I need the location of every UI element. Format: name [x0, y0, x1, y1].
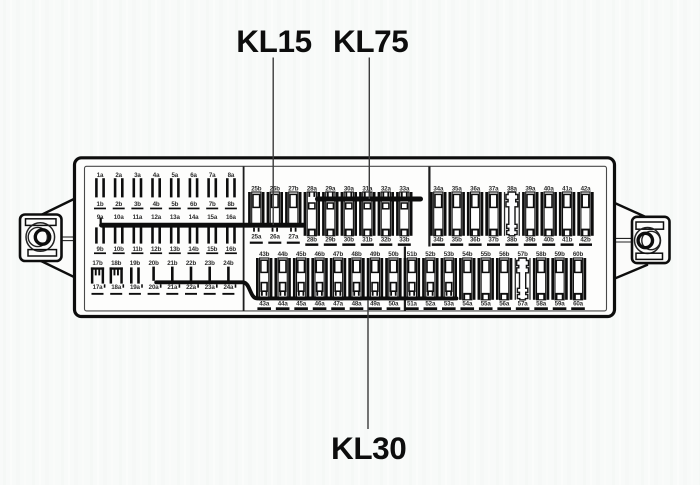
svg-text:50b: 50b: [388, 251, 399, 258]
svg-text:15a: 15a: [207, 214, 218, 221]
svg-text:52b: 52b: [425, 251, 436, 258]
svg-text:48b: 48b: [351, 251, 362, 258]
svg-text:11b: 11b: [132, 246, 142, 253]
svg-text:51a: 51a: [407, 301, 418, 308]
svg-text:42a: 42a: [581, 185, 592, 192]
svg-text:33a: 33a: [399, 185, 410, 192]
svg-text:56a: 56a: [499, 301, 510, 308]
svg-text:55b: 55b: [481, 251, 492, 258]
svg-text:39a: 39a: [525, 185, 536, 192]
svg-text:37a: 37a: [489, 185, 500, 192]
svg-text:58b: 58b: [536, 251, 547, 258]
svg-text:56b: 56b: [499, 251, 510, 258]
svg-text:53a: 53a: [444, 301, 455, 308]
svg-text:KL15: KL15: [236, 23, 311, 59]
svg-text:53b: 53b: [444, 251, 455, 258]
svg-text:6a: 6a: [190, 172, 197, 179]
svg-text:34b: 34b: [433, 236, 444, 243]
svg-text:15b: 15b: [207, 246, 218, 253]
svg-text:35b: 35b: [452, 236, 463, 243]
svg-text:31a: 31a: [362, 185, 373, 192]
svg-text:40a: 40a: [544, 185, 555, 192]
svg-text:59b: 59b: [554, 251, 565, 258]
svg-text:52a: 52a: [425, 301, 436, 308]
svg-text:26a: 26a: [270, 234, 281, 241]
svg-text:44b: 44b: [278, 251, 289, 258]
svg-text:18b: 18b: [111, 260, 122, 267]
svg-text:14a: 14a: [189, 214, 200, 221]
svg-text:48a: 48a: [352, 301, 363, 308]
svg-text:8a: 8a: [228, 172, 235, 179]
svg-text:30a: 30a: [344, 185, 355, 192]
svg-text:44a: 44a: [278, 301, 289, 308]
svg-text:KL75: KL75: [333, 23, 408, 59]
svg-text:41a: 41a: [562, 185, 573, 192]
svg-text:5a: 5a: [172, 172, 179, 179]
svg-text:34a: 34a: [433, 185, 444, 192]
svg-text:8b: 8b: [227, 201, 234, 208]
svg-text:20a: 20a: [149, 284, 160, 291]
svg-text:31b: 31b: [362, 236, 373, 243]
svg-text:32b: 32b: [381, 236, 392, 243]
svg-text:16b: 16b: [226, 246, 237, 253]
svg-text:16a: 16a: [226, 214, 237, 221]
svg-text:22b: 22b: [186, 260, 197, 267]
svg-text:43a: 43a: [259, 301, 270, 308]
svg-text:2a: 2a: [115, 172, 122, 179]
svg-text:9b: 9b: [97, 246, 104, 253]
svg-text:50a: 50a: [388, 301, 399, 308]
svg-text:10a: 10a: [114, 214, 125, 221]
svg-text:21a: 21a: [167, 284, 178, 291]
svg-text:12b: 12b: [151, 246, 162, 253]
svg-text:28b: 28b: [307, 236, 318, 243]
svg-text:45b: 45b: [296, 251, 307, 258]
svg-text:12a: 12a: [151, 214, 162, 221]
svg-text:42b: 42b: [580, 236, 591, 243]
svg-text:18a: 18a: [111, 284, 122, 291]
svg-text:29b: 29b: [325, 236, 336, 243]
svg-text:19b: 19b: [130, 260, 141, 267]
svg-text:2b: 2b: [115, 201, 122, 208]
svg-text:7b: 7b: [209, 201, 216, 208]
svg-text:24b: 24b: [223, 260, 234, 267]
svg-text:17a: 17a: [93, 284, 104, 291]
svg-text:40b: 40b: [544, 236, 555, 243]
svg-text:27b: 27b: [288, 185, 299, 192]
svg-text:1b: 1b: [97, 201, 104, 208]
svg-text:60b: 60b: [573, 251, 584, 258]
svg-text:38a: 38a: [507, 185, 518, 192]
svg-text:49b: 49b: [370, 251, 381, 258]
svg-text:19a: 19a: [130, 284, 141, 291]
svg-text:20b: 20b: [148, 260, 159, 267]
svg-text:23b: 23b: [205, 260, 216, 267]
svg-text:11a: 11a: [133, 214, 143, 221]
svg-text:33b: 33b: [399, 236, 410, 243]
svg-text:59a: 59a: [555, 301, 566, 308]
svg-text:47a: 47a: [333, 301, 344, 308]
svg-text:1a: 1a: [97, 172, 104, 179]
svg-text:6b: 6b: [190, 201, 197, 208]
svg-text:17b: 17b: [92, 260, 103, 267]
svg-text:36a: 36a: [470, 185, 481, 192]
svg-text:57a: 57a: [518, 301, 529, 308]
svg-text:14b: 14b: [188, 246, 199, 253]
svg-text:38b: 38b: [507, 236, 518, 243]
svg-text:57b: 57b: [517, 251, 528, 258]
svg-text:60a: 60a: [573, 301, 584, 308]
svg-text:37b: 37b: [488, 236, 499, 243]
svg-text:28a: 28a: [307, 185, 318, 192]
svg-text:KL30: KL30: [331, 430, 406, 466]
svg-text:46a: 46a: [315, 301, 326, 308]
svg-text:3a: 3a: [134, 172, 141, 179]
svg-text:24a: 24a: [223, 284, 234, 291]
svg-text:29a: 29a: [325, 185, 336, 192]
svg-text:4a: 4a: [153, 172, 160, 179]
svg-text:58a: 58a: [536, 301, 547, 308]
svg-text:10b: 10b: [114, 246, 125, 253]
svg-text:23a: 23a: [205, 284, 216, 291]
svg-text:5b: 5b: [171, 201, 178, 208]
svg-text:13b: 13b: [170, 246, 181, 253]
svg-text:25a: 25a: [251, 234, 262, 241]
svg-text:27a: 27a: [288, 234, 299, 241]
svg-text:55a: 55a: [481, 301, 492, 308]
svg-text:41b: 41b: [562, 236, 573, 243]
svg-text:26b: 26b: [270, 185, 281, 192]
svg-text:21b: 21b: [167, 260, 178, 267]
svg-text:4b: 4b: [153, 201, 160, 208]
svg-text:45a: 45a: [296, 301, 307, 308]
svg-text:46b: 46b: [314, 251, 325, 258]
svg-text:51b: 51b: [407, 251, 418, 258]
svg-text:54a: 54a: [462, 301, 473, 308]
svg-text:54b: 54b: [462, 251, 473, 258]
svg-text:35a: 35a: [452, 185, 463, 192]
svg-text:49a: 49a: [370, 301, 381, 308]
svg-text:47b: 47b: [333, 251, 344, 258]
svg-text:22a: 22a: [186, 284, 197, 291]
svg-text:7a: 7a: [209, 172, 216, 179]
svg-text:39b: 39b: [525, 236, 536, 243]
svg-text:25b: 25b: [251, 185, 262, 192]
svg-text:3b: 3b: [134, 201, 141, 208]
svg-text:32a: 32a: [381, 185, 392, 192]
svg-text:43b: 43b: [259, 251, 270, 258]
svg-text:30b: 30b: [344, 236, 355, 243]
svg-text:36b: 36b: [470, 236, 481, 243]
svg-text:13a: 13a: [170, 214, 181, 221]
